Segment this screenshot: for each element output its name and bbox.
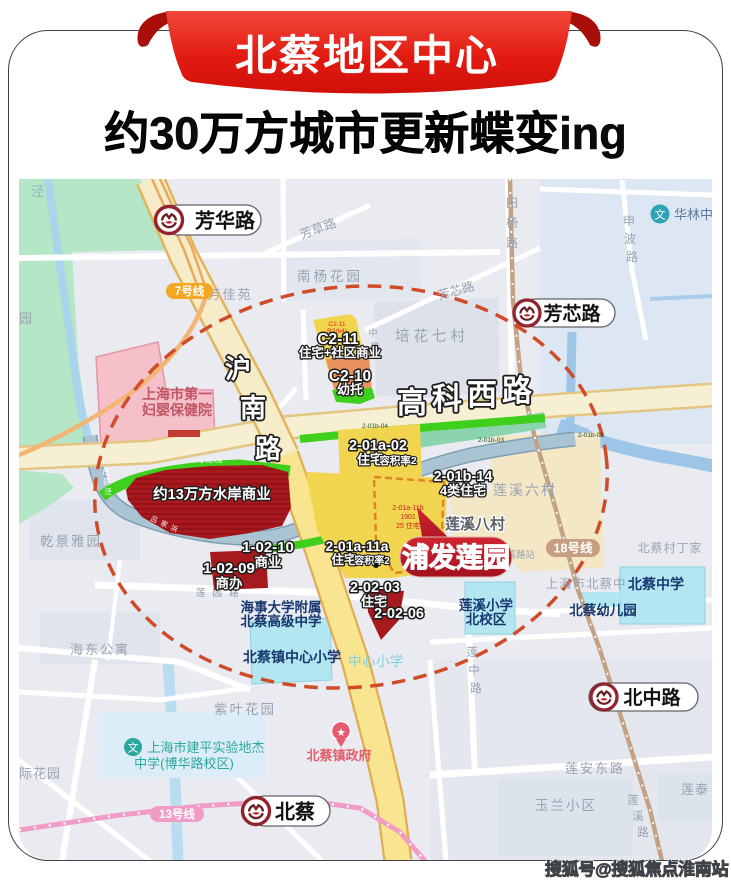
svg-text:上海市建平实验地杰: 上海市建平实验地杰 <box>147 740 264 755</box>
svg-text:路: 路 <box>502 375 533 408</box>
svg-text:际花园: 际花园 <box>19 766 61 781</box>
svg-text:住宅: 住宅 <box>331 552 357 567</box>
svg-text:北中路: 北中路 <box>623 686 681 709</box>
svg-text:路: 路 <box>255 434 282 464</box>
svg-text:25 住宅: 25 住宅 <box>396 521 420 530</box>
svg-text:北蔡幼儿园: 北蔡幼儿园 <box>569 602 637 618</box>
svg-text:中学(博华路校区): 中学(博华路校区) <box>134 756 234 771</box>
svg-text:乾景雅园: 乾景雅园 <box>40 534 102 549</box>
svg-text:芳华路: 芳华路 <box>195 209 256 233</box>
svg-text:莲溪六村: 莲溪六村 <box>493 482 557 498</box>
svg-text:北蔡地区中心: 北蔡地区中心 <box>235 32 499 79</box>
svg-text:芳芯路: 芳芯路 <box>543 302 601 325</box>
svg-text:北蔡镇政府: 北蔡镇政府 <box>306 748 371 763</box>
svg-text:培花七村: 培花七村 <box>395 328 469 345</box>
svg-text:容积率2: 容积率2 <box>378 454 416 467</box>
svg-text:沪: 沪 <box>225 354 251 384</box>
svg-text:容积率2: 容积率2 <box>353 554 390 567</box>
svg-text:北蔡镇中心小学: 北蔡镇中心小学 <box>243 649 341 665</box>
svg-text:高: 高 <box>397 387 427 420</box>
svg-text:南: 南 <box>240 393 266 423</box>
svg-text:中心小学: 中心小学 <box>348 654 404 669</box>
svg-text:13号线: 13号线 <box>159 807 195 821</box>
svg-text:商业: 商业 <box>255 554 282 570</box>
svg-text:芳佳苑: 芳佳苑 <box>207 287 252 302</box>
svg-text:海东公寓: 海东公寓 <box>70 642 130 657</box>
svg-text:北蔡村丁家: 北蔡村丁家 <box>637 540 702 555</box>
svg-text:西: 西 <box>467 379 497 412</box>
svg-text:上海市北蔡中: 上海市北蔡中 <box>545 576 626 591</box>
svg-text:上海市第一: 上海市第一 <box>142 386 212 402</box>
svg-text:园: 园 <box>19 311 32 326</box>
svg-text:紫叶花园: 紫叶花园 <box>214 702 276 717</box>
svg-text:2-02-06: 2-02-06 <box>374 606 424 622</box>
svg-text:南杨花园: 南杨花园 <box>297 269 363 284</box>
svg-text:北蔡中学: 北蔡中学 <box>628 576 684 592</box>
svg-text:2-01b-08: 2-01b-08 <box>578 432 604 439</box>
svg-text:★: ★ <box>336 727 346 739</box>
svg-text:科: 科 <box>432 383 462 416</box>
svg-text:北蔡高级中学: 北蔡高级中学 <box>241 613 322 629</box>
svg-text:2-01b-03: 2-01b-03 <box>478 437 504 444</box>
svg-text:7号线: 7号线 <box>175 284 205 298</box>
svg-text:18号线: 18号线 <box>554 541 593 556</box>
svg-text:2-01b-04: 2-01b-04 <box>362 423 388 430</box>
svg-text:浦发莲园: 浦发莲园 <box>402 542 510 573</box>
svg-text:商办: 商办 <box>216 575 243 591</box>
svg-text:华林中: 华林中 <box>674 207 712 222</box>
svg-text:北校区: 北校区 <box>466 611 507 627</box>
svg-text:妇婴保健院: 妇婴保健院 <box>141 402 212 418</box>
svg-text:玉兰小区: 玉兰小区 <box>535 798 597 813</box>
svg-text:1901: 1901 <box>400 514 416 521</box>
svg-text:住宅+社区商业: 住宅+社区商业 <box>299 345 382 360</box>
svg-text:田杨路: 田杨路 <box>506 196 518 250</box>
svg-text:1-02-09: 1-02-09 <box>203 560 255 577</box>
svg-text:莲溪小学: 莲溪小学 <box>459 597 513 613</box>
svg-text:C2-11: C2-11 <box>328 321 346 328</box>
svg-text:文: 文 <box>655 208 666 222</box>
svg-text:海事大学附属: 海事大学附属 <box>241 599 322 615</box>
svg-text:1-02-10: 1-02-10 <box>242 539 294 556</box>
svg-text:4类住宅: 4类住宅 <box>440 483 486 498</box>
svg-text:2-01a-11a: 2-01a-11a <box>325 538 388 554</box>
svg-text:约13万方水岸商业: 约13万方水岸商业 <box>153 485 271 503</box>
svg-text:北蔡: 北蔡 <box>275 800 315 824</box>
svg-text:莲泰: 莲泰 <box>681 782 709 797</box>
svg-text:文: 文 <box>128 741 139 755</box>
svg-text:幼托: 幼托 <box>337 382 363 397</box>
svg-text:莲溪八村: 莲溪八村 <box>445 515 505 533</box>
svg-text:1-02-06: 1-02-06 <box>200 458 223 465</box>
svg-text:泾: 泾 <box>31 184 44 199</box>
svg-text:莲安东路: 莲安东路 <box>565 761 625 776</box>
